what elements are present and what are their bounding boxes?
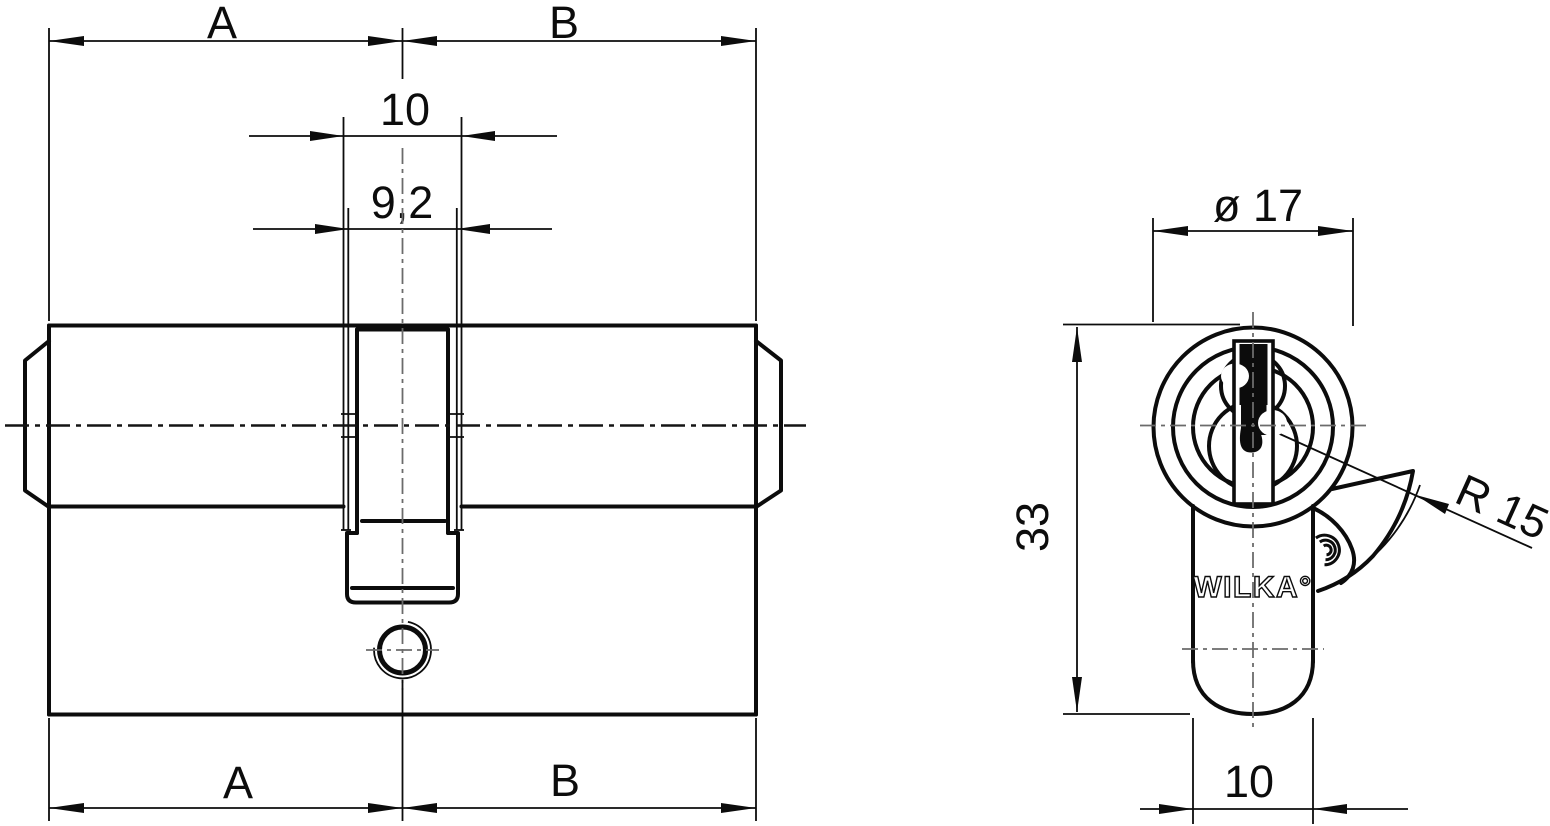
- dim-label-height: 33: [1007, 502, 1058, 552]
- brand-logo-text: WILKA°: [1193, 571, 1312, 604]
- dim-label-foot-width: 10: [1224, 756, 1274, 807]
- dim-label-b-bottom: B: [550, 755, 580, 806]
- dim-label-cam-width: 10: [380, 84, 430, 135]
- cam-ear-outline: [1318, 471, 1413, 591]
- technical-drawing-canvas: A B 10 9,2: [0, 0, 1550, 826]
- cylinder-drawing: A B 10 9,2: [0, 0, 1550, 826]
- dim-label-radius: R 15: [1449, 464, 1550, 550]
- dim-label-b-top: B: [549, 0, 579, 48]
- side-view: A B 10 9,2: [5, 0, 806, 821]
- dim-label-a-top: A: [207, 0, 237, 48]
- side-bottom-dimension: A B: [49, 680, 756, 821]
- right-chamfer: [756, 341, 781, 507]
- cam-ear: [1313, 471, 1413, 591]
- foot-width-dimension: 10: [1140, 718, 1408, 824]
- height-dimension: 33: [1007, 325, 1240, 715]
- diameter-dimension: ø 17: [1153, 180, 1353, 326]
- dim-label-diameter: ø 17: [1213, 180, 1303, 231]
- left-chamfer: [25, 341, 49, 507]
- front-view: ø 17 33: [1007, 180, 1550, 824]
- dim-label-a-bottom: A: [223, 757, 253, 808]
- spring-arcs-icon: [1316, 535, 1339, 565]
